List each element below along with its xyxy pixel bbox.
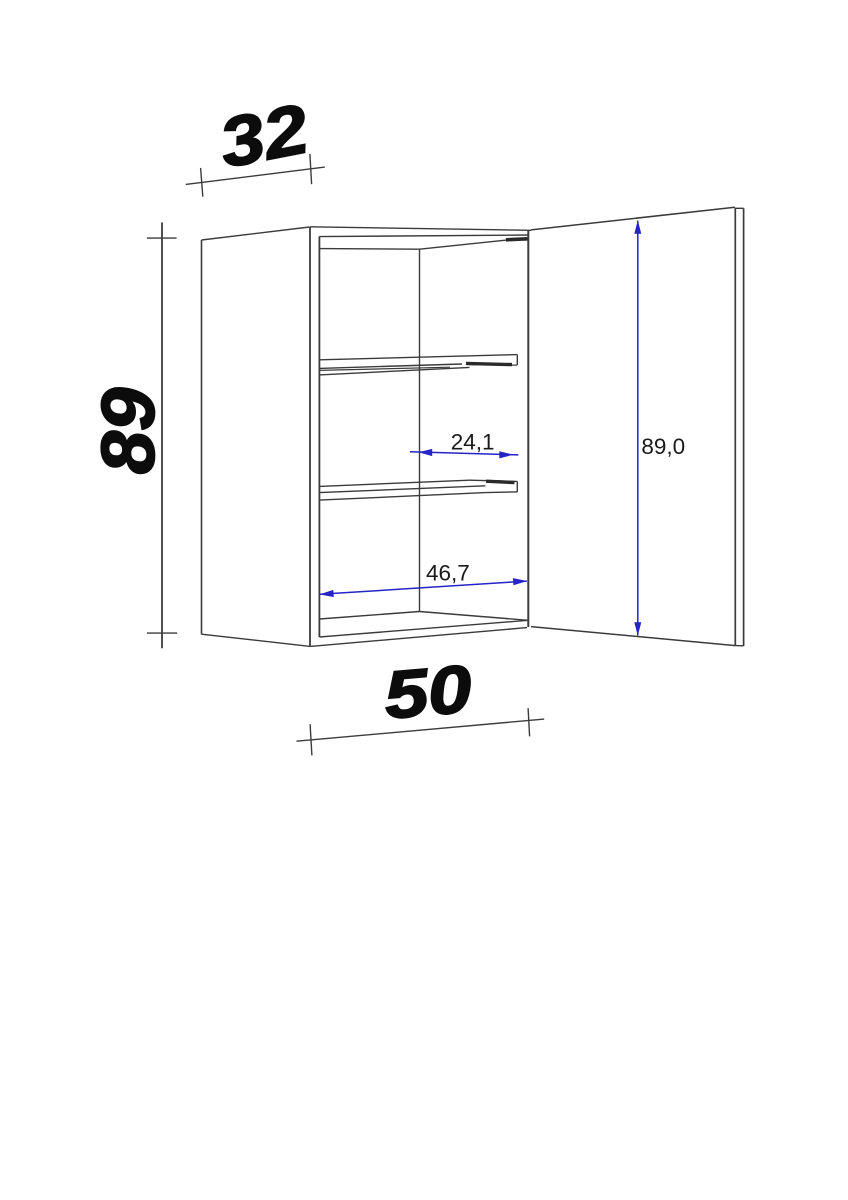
svg-text:46,7: 46,7 xyxy=(426,561,470,586)
svg-text:89,0: 89,0 xyxy=(641,434,685,459)
svg-text:32: 32 xyxy=(213,88,314,182)
svg-text:24,1: 24,1 xyxy=(451,429,495,454)
svg-text:50: 50 xyxy=(381,652,474,734)
svg-text:89: 89 xyxy=(87,387,170,474)
